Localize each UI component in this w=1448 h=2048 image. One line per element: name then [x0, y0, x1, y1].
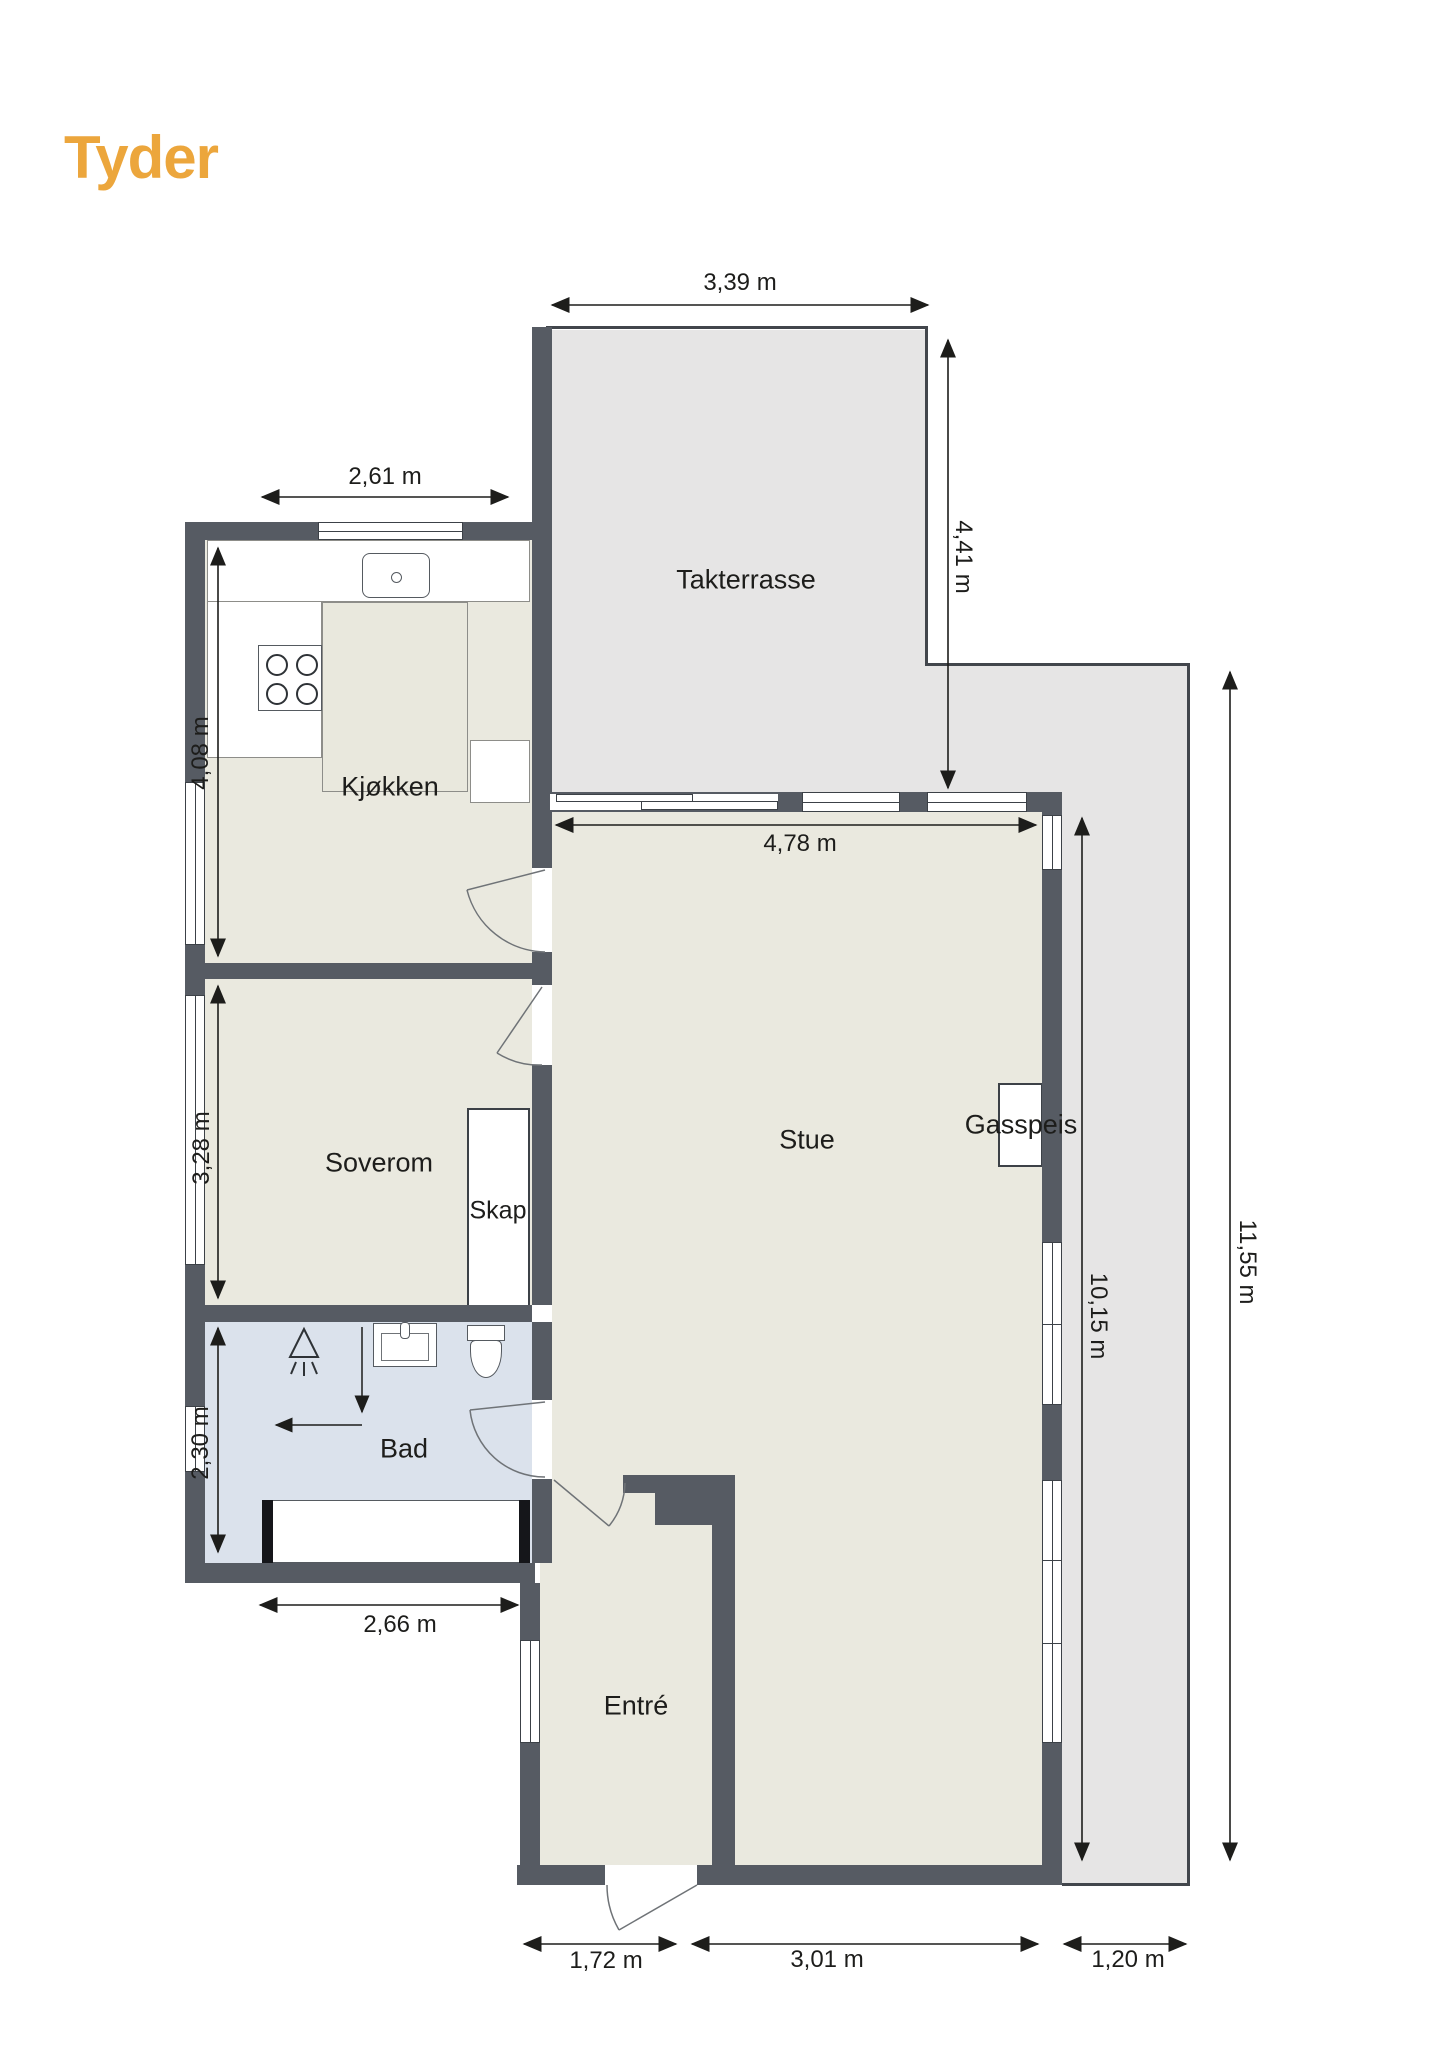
room-label-stue: Stue: [779, 1125, 835, 1156]
door-opening-kjokken: [532, 868, 552, 952]
dim-terrace-strip-width: 1,20 m: [1091, 1946, 1164, 1974]
dim-stue-depth: 10,15 m: [1084, 1273, 1112, 1360]
wall-bottom-exterior: [517, 1865, 1062, 1885]
wall-entre-stue-jog: [623, 1475, 735, 1493]
closet-side: [262, 1500, 273, 1563]
kitchen-island: [322, 602, 468, 792]
terrace-right-upper-area: [926, 666, 1188, 792]
terrace-outline: [925, 326, 928, 666]
wall-bad-bottom: [185, 1563, 535, 1583]
stove-icon: [258, 645, 322, 711]
terrace-outline: [1187, 663, 1190, 1886]
room-label-entre: Entré: [604, 1691, 669, 1722]
room-label-skap: Skap: [470, 1197, 527, 1226]
room-label-soverom: Soverom: [325, 1148, 433, 1179]
wall-kjokken-stue: [532, 792, 552, 870]
door-opening-entrance: [605, 1865, 697, 1885]
room-label-bad: Bad: [380, 1434, 428, 1465]
sliding-door-panel: [641, 801, 778, 810]
kitchen-counter-right: [470, 740, 530, 803]
toilet-icon: [467, 1325, 505, 1341]
window-entre-left: [520, 1640, 540, 1743]
door-swing-entrance: [607, 1885, 697, 1930]
wall-terrace-left: [532, 327, 552, 792]
window-kjokken-left: [185, 782, 205, 945]
wall-divider-kjokken-soverom: [205, 963, 532, 979]
faucet-icon: [400, 1322, 410, 1339]
door-opening-soverom: [532, 985, 552, 1065]
terrace-outline: [925, 663, 1190, 666]
wall-kjokken-stue: [532, 950, 552, 987]
dim-kitchen-width: 2,61 m: [348, 463, 421, 491]
window-stue-right-top: [1042, 815, 1062, 870]
kitchen-sink-drain-icon: [391, 572, 402, 583]
terrace-top-area: [548, 330, 926, 792]
window-kjokken-top: [318, 522, 463, 540]
room-entre-floor: [540, 1477, 715, 1865]
window-stue-right-2: [1042, 1480, 1062, 1743]
wall-entre-stue-jog: [655, 1493, 735, 1525]
wall-divider-soverom-bad: [185, 1305, 532, 1322]
window-pane-divider: [1042, 1324, 1062, 1325]
window-stue-top-2: [927, 792, 1027, 812]
window-stue-top-1: [802, 792, 900, 812]
floorplan-page: Tyder: [0, 0, 1448, 2048]
window-pane-divider: [1042, 1560, 1062, 1561]
dim-stue-width: 4,78 m: [763, 830, 836, 858]
terrace-right-strip-area: [1062, 792, 1188, 1884]
room-label-kjokken: Kjøkken: [341, 772, 439, 803]
brand-logo: Tyder: [64, 123, 218, 192]
room-label-takterrasse: Takterrasse: [676, 565, 816, 596]
wall-bad-stue: [532, 1477, 552, 1563]
entre-closet: [262, 1500, 530, 1563]
dim-kitchen-depth: 4,08 m: [187, 716, 215, 789]
dim-terrace-depth: 4,41 m: [949, 520, 977, 593]
dim-entre-width: 1,72 m: [569, 1947, 642, 1975]
dim-bad-depth: 2,30 m: [187, 1406, 215, 1479]
dim-soverom-depth: 3,28 m: [188, 1111, 216, 1184]
dim-right-side-total: 11,55 m: [1233, 1220, 1261, 1305]
window-pane-divider: [1042, 1643, 1062, 1644]
dim-bad-width: 2,66 m: [363, 1611, 436, 1639]
door-opening-bad: [532, 1400, 552, 1479]
wall-soverom-stue: [532, 1065, 552, 1305]
wall-entre-stue: [712, 1525, 735, 1865]
terrace-outline: [546, 326, 928, 329]
dim-terrace-top-width: 3,39 m: [703, 269, 776, 297]
terrace-outline: [1062, 1883, 1190, 1886]
room-label-gasspeis: Gasspeis: [965, 1110, 1078, 1141]
wall-bad-stue: [532, 1322, 552, 1402]
closet-side: [519, 1500, 530, 1563]
dim-stue-bottom-width: 3,01 m: [790, 1946, 863, 1974]
